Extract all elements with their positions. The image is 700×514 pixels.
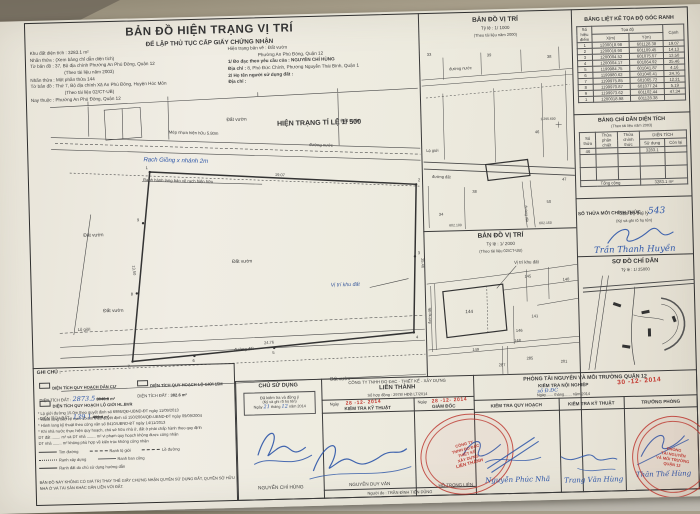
parcel-boundary <box>128 165 421 361</box>
dat-vuon-label: Đất vườn <box>232 258 253 265</box>
stamp-text: PHÒNG <box>667 446 682 453</box>
point-number: 9 <box>137 217 140 222</box>
sheet-label: 602.150 <box>539 221 552 225</box>
sodo-sketch <box>583 273 697 370</box>
parcel-corner-points <box>127 164 422 363</box>
line-sample-bold <box>39 468 57 469</box>
stamp-text: QUẬN 12 <box>663 461 681 469</box>
point-number: 1 <box>146 165 149 170</box>
info-label: Địa chỉ : <box>228 66 246 71</box>
info-label: Nhãn thửa : <box>30 77 54 83</box>
dirt-road-label: đường đất <box>524 205 529 222</box>
cell <box>665 94 686 101</box>
map2000-site-parcel <box>443 284 507 338</box>
stamp-text: XÂY DỰNG <box>457 453 479 464</box>
stamp-text: VÀ MÔI TRƯỜNG <box>656 454 690 464</box>
stamp-text: THIẾT KẾ <box>457 449 476 459</box>
cell <box>640 166 666 180</box>
date-month-handwritten: 12 <box>281 404 288 410</box>
owner-date-line: Ngày 21 tháng 12 năm 2014 <box>245 403 315 411</box>
main-map-lines <box>50 86 426 391</box>
scanned-document-paper: 267621 CN4 BẢN ĐỒ HIỆN TRẠNG VỊ TRÍ ĐỂ L… <box>0 4 700 514</box>
handwritten-canal-note: Rạch Giồng x nhánh 2m <box>143 157 208 165</box>
parcel-number: 50 <box>547 199 552 204</box>
area-col: Thửa phân chiết <box>596 132 618 149</box>
map2000-inner-line <box>487 286 488 333</box>
legend-box-icon <box>39 382 50 389</box>
parcel-number: 47 <box>562 176 567 181</box>
road-boundary-label: Lộ giới <box>426 148 438 153</box>
cell <box>618 153 640 167</box>
info-value: 37, Bộ địa chính Phường An Phú Đông, Quậ… <box>55 61 155 69</box>
cell <box>640 153 666 167</box>
map2000-drawing: 144 145 140 141 146 148 149 287 285 201 … <box>426 254 580 376</box>
dat-vuon-label: Đất vườn <box>226 117 247 124</box>
edge-label: 19.07 <box>275 172 286 177</box>
ghi-chu-notes: * Lộ giới đường 15.0m theo quyết định số… <box>38 406 235 447</box>
legend-label: Ranh lộ giới <box>109 448 131 454</box>
stamp-text: TÀI NGUYÊN <box>661 450 686 459</box>
line-sample-thin <box>97 458 115 459</box>
coord-col-point: Số hiệu điểm <box>577 26 592 42</box>
cell: 601128.38 <box>631 95 665 102</box>
info-label: 2/ Họ tên người sử dụng đất : <box>228 71 293 78</box>
cell <box>580 154 597 167</box>
sodo-lines <box>583 273 697 370</box>
parcel-number: 144 <box>465 309 473 314</box>
protection-corridor-label: Ranh hành lang bảo vệ rạch hiện hữu <box>143 177 214 184</box>
info-label: Hiện trạng bản vẽ : <box>228 45 267 51</box>
info-label: Nhãn thửa : <box>30 57 54 63</box>
edge-label: 24.76 <box>264 339 275 345</box>
parcel-number: 285 <box>527 355 535 360</box>
parcel-number: 34 <box>439 212 444 217</box>
parcel-number: 38 <box>472 189 477 194</box>
parcel-number: 38 <box>547 54 552 59</box>
line-sample-dashed <box>90 451 108 452</box>
item-label: DIỆN TÍCH QUY HOẠCH LỘ GIỚI HL.BVR <box>53 402 133 409</box>
document-sheet: 267621 CN4 BẢN ĐỒ HIỆN TRẠNG VỊ TRÍ ĐỂ L… <box>0 4 700 514</box>
parcel-number: 145 <box>524 273 532 278</box>
info-value: 3283.1 m² <box>68 50 89 56</box>
point-number: 6 <box>192 358 195 363</box>
area-table: Số thửa Thửa phân chiết Thửa chính thức … <box>579 129 688 187</box>
map1000-parcel-numbers: 33 39 38 46 47 38 34 50 <box>427 49 568 217</box>
legend-label: Lề đường <box>162 446 180 451</box>
cell <box>596 154 618 168</box>
parcel-point-numbers: 1 2 3 4 5 6 7 8 9 <box>123 158 426 368</box>
cell <box>580 167 597 180</box>
legend-label: Tim đường <box>59 449 79 454</box>
info-value: (Theo tài liệu năm 2003) <box>64 69 114 75</box>
parcel-number: 287 <box>499 362 507 367</box>
technical-check-signature <box>304 426 415 484</box>
cell <box>665 152 687 166</box>
coord-col-edge: Cạnh <box>663 24 684 41</box>
info-label: Địa chỉ : <box>228 79 246 84</box>
legend-box-icon <box>137 380 148 387</box>
date-day-handwritten: 21 <box>263 404 270 410</box>
total-label: Tổng cộng <box>581 179 641 187</box>
legend-label: Ranh xây dựng <box>59 457 86 463</box>
dirt-road-label: đường đất <box>234 346 255 352</box>
parcel-number: 201 <box>561 359 569 364</box>
info-label: 1/ Đo đạc theo yêu cầu của : <box>228 58 290 65</box>
parcel-number: 39 <box>487 52 492 57</box>
sheet-label: 602.100 <box>449 223 462 227</box>
area-col: Số thửa <box>579 132 596 148</box>
road-boundary-label: Lộ giới <box>78 327 91 332</box>
cell <box>597 167 619 181</box>
stamp-text: CÔNG TY <box>455 439 474 449</box>
info-label: Khu đất diện tích : <box>30 50 67 56</box>
map1000-site-parcel <box>486 159 530 180</box>
dirt-road-label: đường đất <box>432 174 452 180</box>
info-value: NGUYỄN CHÍ HÙNG <box>291 57 335 63</box>
dat-vuon-label: Đất vườn <box>103 308 124 315</box>
line-sample-solid <box>39 452 57 453</box>
water-road-label: đường nước <box>449 65 472 71</box>
date-word: Ngày <box>254 405 263 409</box>
owner-inner-box: Đã kiểm tra và đồng ý (Ký và ghi rõ họ t… <box>243 391 316 416</box>
point-number: 4 <box>416 334 419 339</box>
map1000-drawing: 33 39 38 46 47 38 34 50 đường nước Lộ gi… <box>421 42 577 230</box>
edge-label: 13.50 <box>131 265 137 276</box>
info-block-right: Hiện trạng bản vẽ : Đất vườn Phường An P… <box>228 41 419 86</box>
info-value: (Xem bảng chỉ dẫn diện tích) <box>55 56 114 62</box>
map2000-lines <box>426 264 580 376</box>
line-sample-dotted <box>39 460 57 461</box>
road-surface-label: Mép nhựa hiện hữu 5.80m <box>169 130 219 136</box>
land-use-labels: Đất vườn Đất vườn Đất vườn Đất vườn Đất … <box>80 114 367 389</box>
info-value: Một phần thửa 144 <box>56 76 95 82</box>
main-map-drawing: 1 2 3 4 5 6 7 8 9 19.07 25.46 24.76 13.5… <box>28 86 428 400</box>
dept-technical-check-signature <box>557 437 622 475</box>
edge-length-labels: 19.07 25.46 24.76 13.50 <box>129 168 428 348</box>
parcel-number: 46 <box>535 129 540 134</box>
planning-check-signature <box>478 427 549 477</box>
legend-label: Ranh ban công <box>117 455 144 461</box>
ghi-chu-title: GHI CHÚ : <box>37 369 61 376</box>
cell: 1200018.98 <box>594 96 631 103</box>
grid-coordinate-label: 1.295.600 <box>540 117 555 121</box>
parcel-number: 141 <box>531 313 539 318</box>
item-label: DIỆN TÍCH QUY HOẠCH DÂN CƯ <box>52 384 116 391</box>
date-word: tháng <box>271 405 281 409</box>
parcel-number: 148 <box>514 338 522 343</box>
cell: 1 <box>578 97 593 103</box>
dirt-road-label: đường đất <box>428 308 432 324</box>
site-location-label: Vị trí khu đất <box>514 259 540 265</box>
item-label: DIỆN TÍCH QUY HOẠCH LỘ GIỚI 15M <box>150 381 223 388</box>
point-number: 2 <box>418 177 421 182</box>
line-sample-longdash <box>142 449 160 450</box>
sodo-marks <box>613 300 678 349</box>
info-value: Đất vườn <box>268 45 287 50</box>
parcel-number: 146 <box>516 328 524 333</box>
cell <box>618 166 640 180</box>
legend-box-icon <box>39 400 50 407</box>
cell <box>665 165 687 179</box>
stamp-text: TNHH ĐO ĐẠC <box>451 442 479 454</box>
coord-table: Số hiệu điểm Tọa độ Cạnh X(m) Y(m) 11200… <box>576 23 686 103</box>
point-number: 8 <box>131 291 134 296</box>
point-number: 3 <box>418 250 421 255</box>
site-location-label: Vị trí khu đất <box>331 281 361 289</box>
info-label: Tờ bản đồ : <box>30 84 54 90</box>
parcel-number: 33 <box>427 52 432 57</box>
dat-vuon-label: Đất vườn <box>340 118 361 125</box>
water-road-label: đường nước <box>309 142 333 148</box>
point-number: 5 <box>272 350 275 355</box>
parcel-number: 149 <box>472 347 480 352</box>
dat-vuon-label: Đất vườn <box>83 232 104 239</box>
total-value: 3283.1 m² <box>640 178 687 185</box>
info-label: Tờ bản đồ : <box>30 64 54 70</box>
map1000-lines <box>421 46 577 230</box>
date-word: năm 2014 <box>289 404 306 408</box>
area-col: Thửa chính thức <box>617 131 639 148</box>
parcel-number: 140 <box>563 276 571 281</box>
